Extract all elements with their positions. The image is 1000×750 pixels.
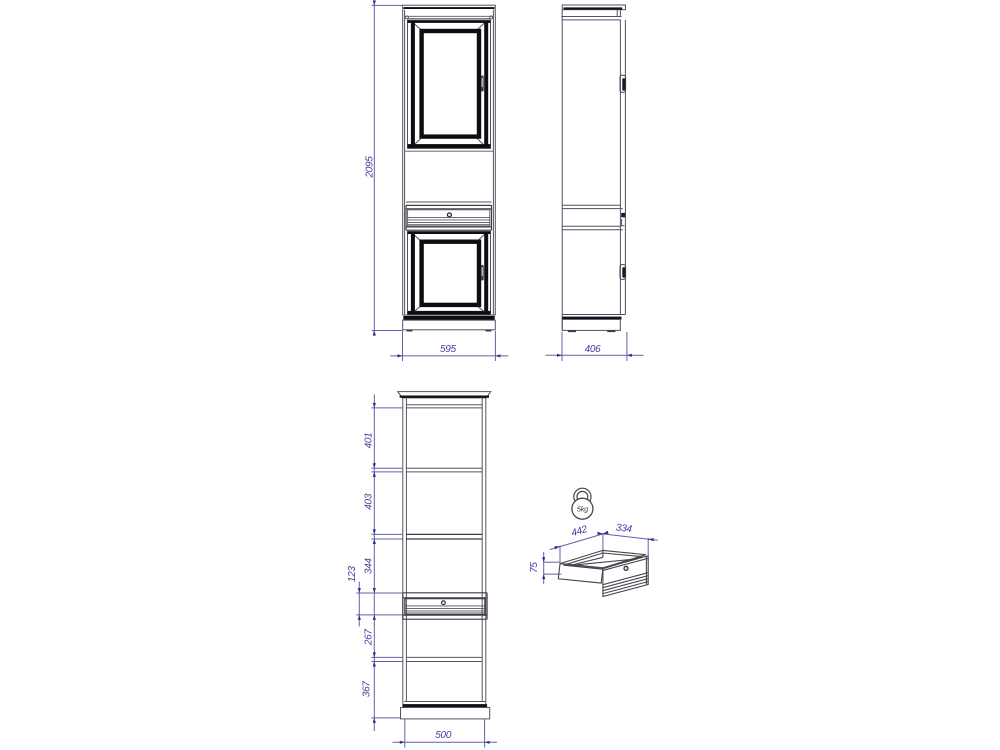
svg-text:442: 442 [570, 524, 589, 539]
svg-text:403: 403 [363, 493, 374, 510]
svg-text:123: 123 [347, 566, 358, 583]
svg-text:2095: 2095 [365, 156, 376, 179]
svg-text:401: 401 [363, 433, 374, 449]
svg-text:75: 75 [529, 562, 540, 573]
svg-text:595: 595 [440, 344, 457, 355]
svg-text:500: 500 [435, 730, 452, 741]
svg-text:367: 367 [362, 681, 373, 698]
svg-text:406: 406 [585, 344, 602, 355]
svg-text:334: 334 [615, 522, 633, 535]
svg-text:267: 267 [363, 629, 374, 647]
svg-text:5kg: 5kg [577, 504, 589, 513]
svg-text:344: 344 [363, 558, 374, 575]
